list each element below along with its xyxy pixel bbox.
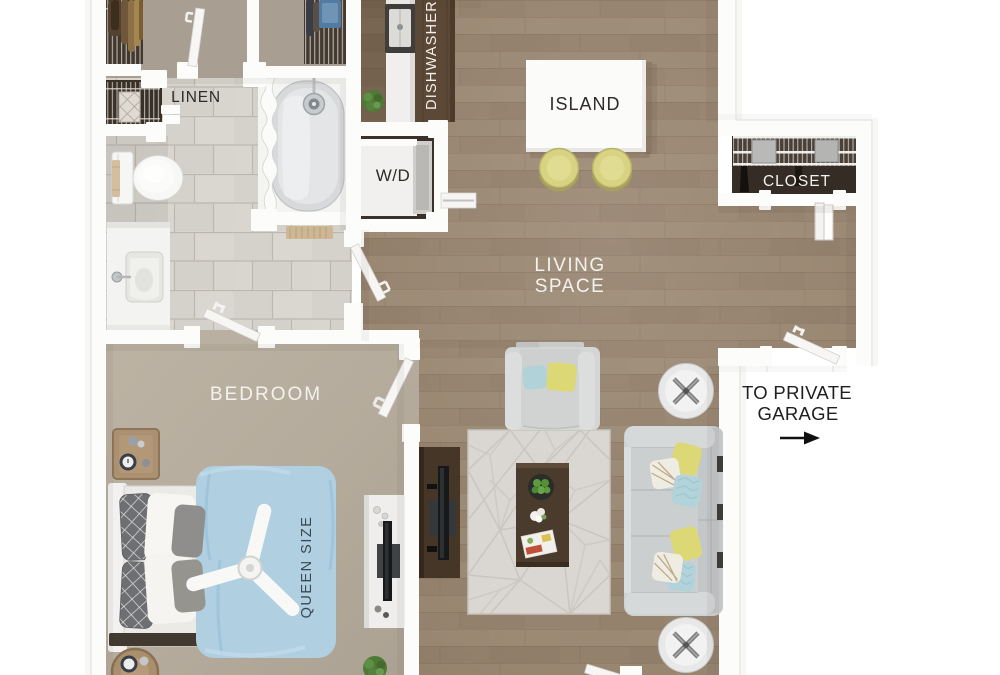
svg-text:BEDROOM: BEDROOM bbox=[210, 384, 322, 405]
svg-text:TO PRIVATE: TO PRIVATE bbox=[742, 382, 852, 403]
svg-text:DISHWASHER: DISHWASHER bbox=[424, 0, 440, 110]
svg-text:SPACE: SPACE bbox=[535, 276, 606, 297]
svg-text:W/D: W/D bbox=[376, 166, 411, 185]
svg-text:LIVING: LIVING bbox=[534, 255, 605, 276]
svg-text:ISLAND: ISLAND bbox=[549, 94, 620, 114]
svg-text:QUEEN SIZE: QUEEN SIZE bbox=[299, 516, 315, 619]
svg-text:LINEN: LINEN bbox=[171, 89, 221, 106]
svg-text:GARAGE: GARAGE bbox=[758, 403, 839, 424]
svg-text:CLOSET: CLOSET bbox=[763, 173, 831, 190]
